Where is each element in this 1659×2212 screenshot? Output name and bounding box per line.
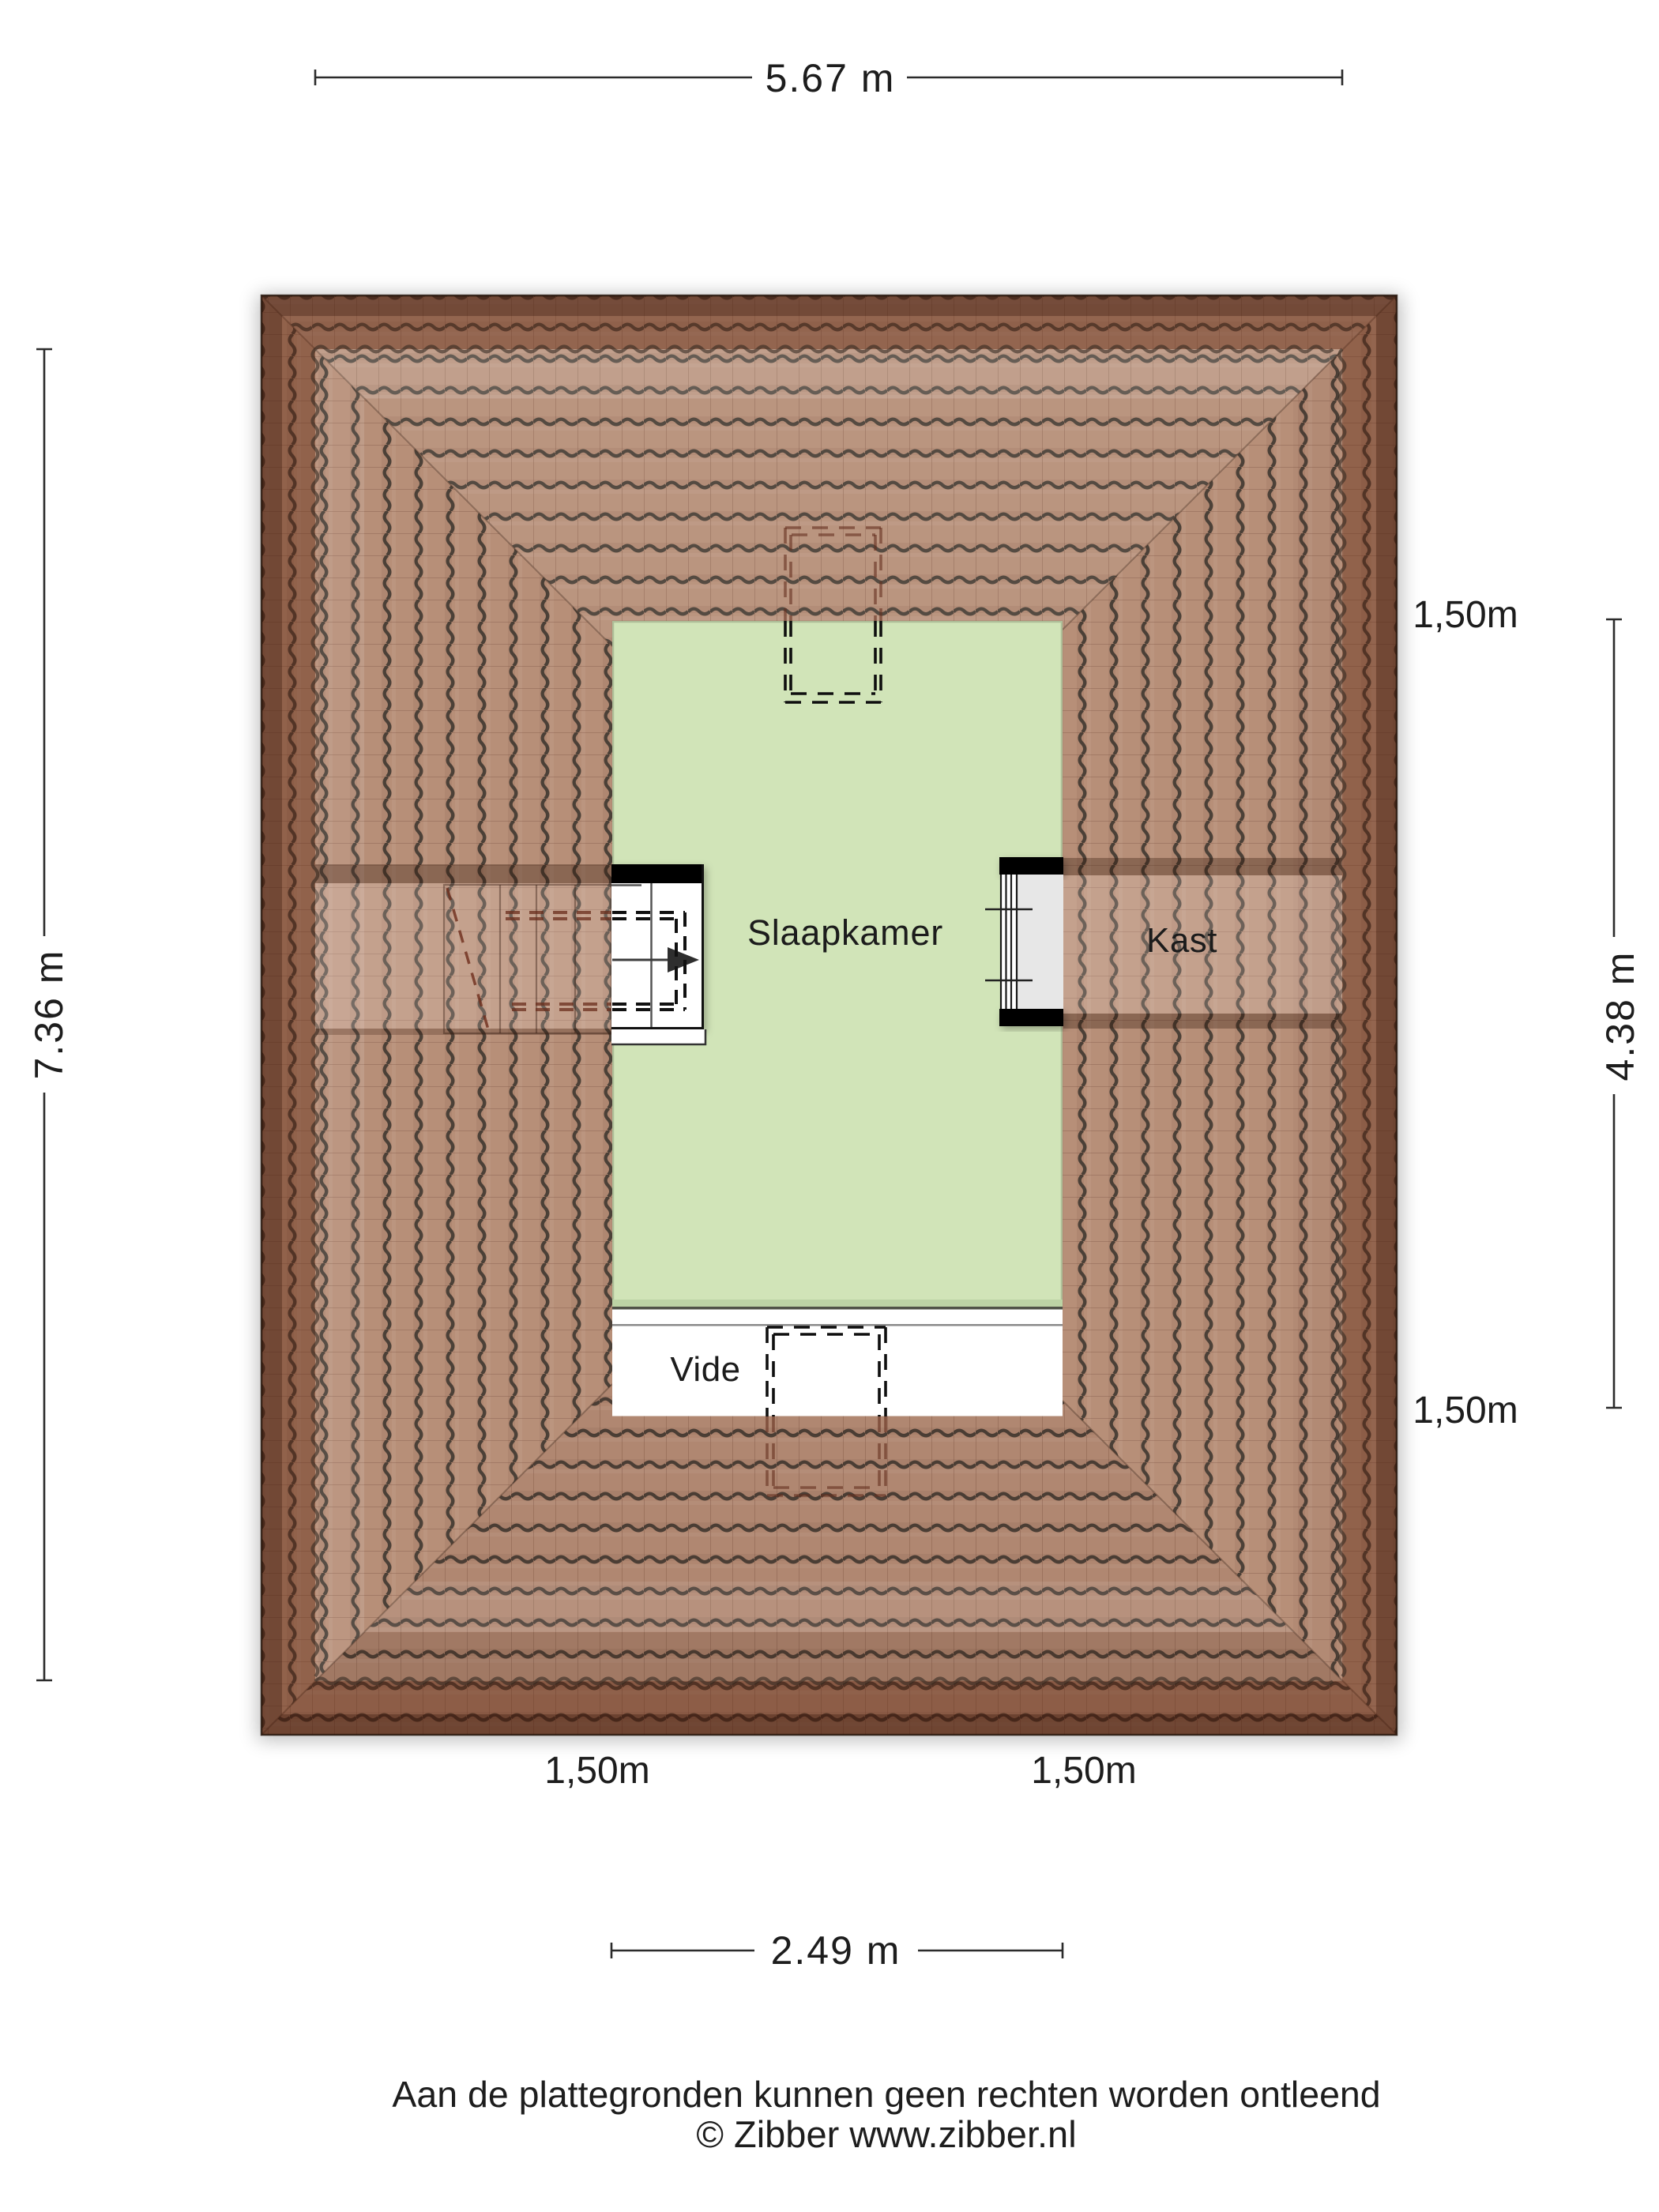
svg-text:Aan de plattegronden kunnen ge: Aan de plattegronden kunnen geen rechten…	[392, 2074, 1380, 2115]
svg-text:Slaapkamer: Slaapkamer	[747, 912, 943, 953]
svg-text:4.38 m: 4.38 m	[1598, 951, 1642, 1082]
svg-text:Vide: Vide	[670, 1350, 740, 1389]
svg-text:1,50m: 1,50m	[1413, 594, 1518, 636]
svg-text:7.36 m: 7.36 m	[27, 950, 71, 1080]
svg-text:1,50m: 1,50m	[1413, 1390, 1518, 1431]
svg-text:© Zibber www.zibber.nl: © Zibber www.zibber.nl	[696, 2113, 1076, 2155]
svg-text:Kast: Kast	[1146, 921, 1217, 960]
svg-text:2.49 m: 2.49 m	[771, 1928, 901, 1973]
svg-text:5.67 m: 5.67 m	[766, 56, 896, 100]
svg-text:1,50m: 1,50m	[544, 1750, 649, 1792]
svg-text:1,50m: 1,50m	[1031, 1750, 1136, 1792]
